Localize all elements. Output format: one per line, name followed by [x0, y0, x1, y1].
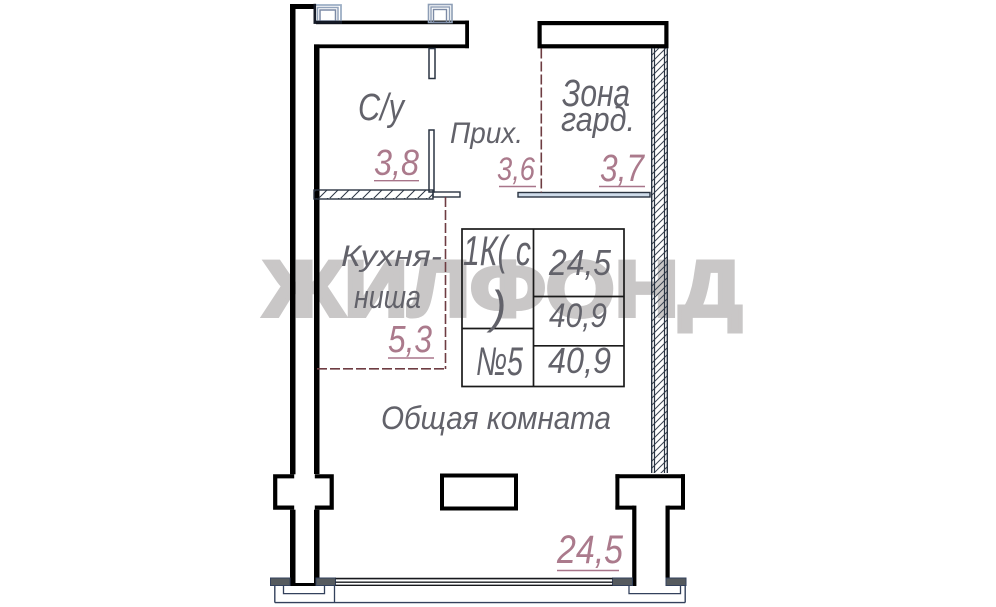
svg-text:40,9: 40,9 — [549, 297, 607, 335]
svg-text:№5: №5 — [476, 340, 524, 384]
svg-text:Прих.: Прих. — [450, 117, 523, 150]
svg-text:5,3: 5,3 — [388, 319, 432, 361]
svg-text:Общая комната: Общая комната — [381, 400, 611, 436]
svg-text:3,6: 3,6 — [497, 151, 535, 187]
svg-text:3,7: 3,7 — [600, 148, 646, 190]
svg-text:С/у: С/у — [358, 87, 406, 129]
svg-text:40,9: 40,9 — [548, 340, 611, 381]
svg-text:24,5: 24,5 — [548, 242, 612, 283]
svg-text:1К( с: 1К( с — [463, 227, 531, 274]
svg-text:ниша: ниша — [354, 279, 421, 315]
svg-text:3,8: 3,8 — [374, 142, 419, 183]
svg-text:Кухня-: Кухня- — [341, 240, 442, 273]
svg-text:гард.: гард. — [561, 101, 635, 139]
svg-text:24,5: 24,5 — [556, 528, 623, 572]
